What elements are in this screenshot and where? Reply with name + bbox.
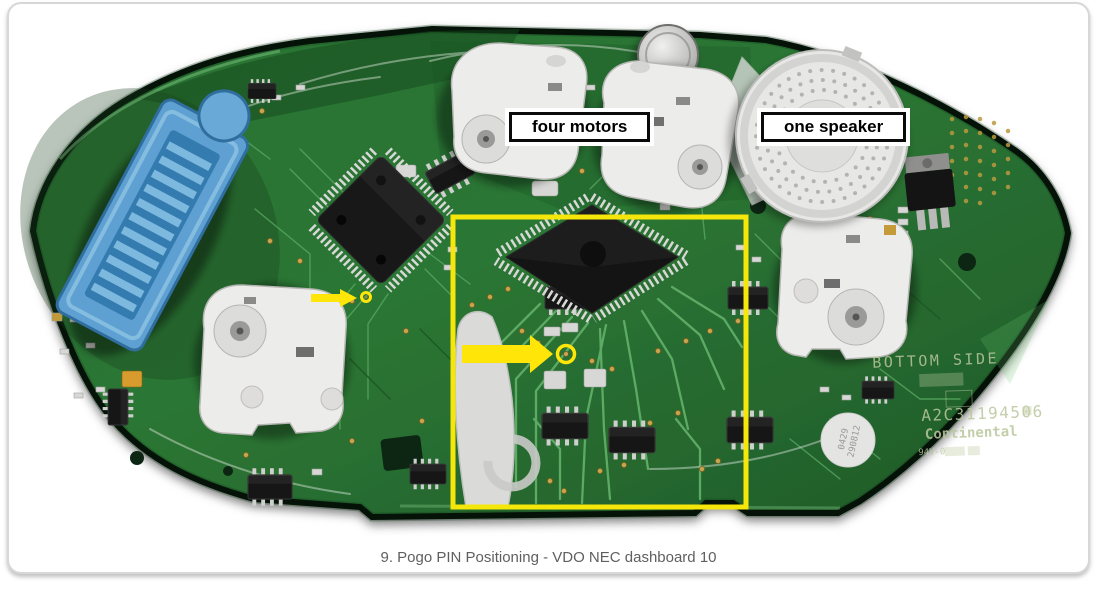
pcb-photo: 0429 290812 BOTTOM SIDE A2C31194506 Cont… xyxy=(9,4,1088,549)
figure-frame: 0429 290812 BOTTOM SIDE A2C31194506 Cont… xyxy=(7,2,1090,574)
one-speaker-label-text: one speaker xyxy=(761,112,906,142)
date-sticker: 0429 290812 xyxy=(821,413,875,467)
stepper-motor-right xyxy=(773,213,917,364)
one-speaker-label: one speaker xyxy=(757,108,910,146)
figure-caption: 9. Pogo PIN Positioning - VDO NEC dashbo… xyxy=(9,549,1088,566)
four-motors-label: four motors xyxy=(505,108,654,146)
four-motors-label-text: four motors xyxy=(509,112,650,142)
silkscreen-brand: Continental xyxy=(925,424,1018,443)
stepper-motor-left xyxy=(194,283,350,439)
silkscreen-flammability: 94V-0 xyxy=(918,447,945,458)
